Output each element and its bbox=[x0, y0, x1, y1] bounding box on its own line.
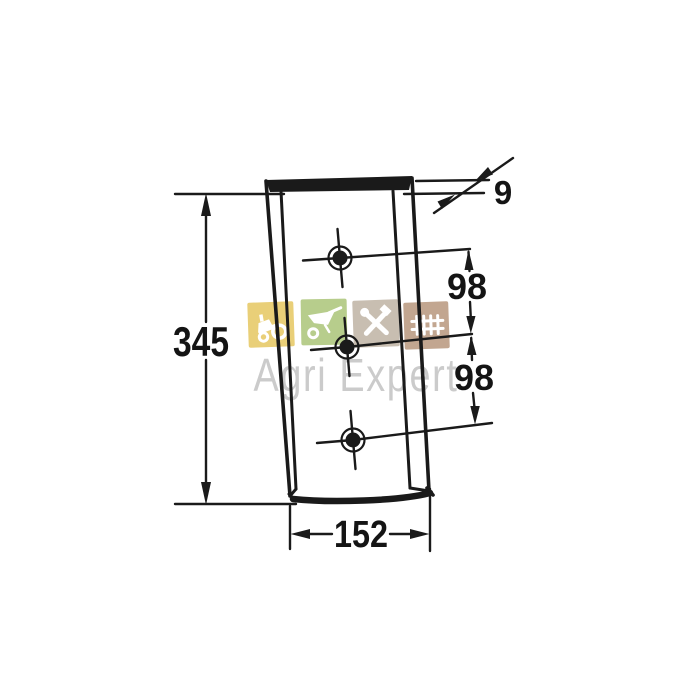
dim-label-152: 152 bbox=[334, 514, 388, 556]
watermark-tile-3 bbox=[352, 299, 400, 348]
watermark-text: Agri Expert bbox=[254, 349, 459, 401]
dim-9-ext-lower bbox=[404, 193, 484, 194]
technical-drawing-page: Agri Expert bbox=[0, 0, 700, 700]
drawing-canvas: Agri Expert bbox=[0, 0, 700, 700]
harrow-tile bbox=[403, 301, 450, 350]
dim-label-98-upper: 98 bbox=[447, 266, 487, 307]
dim-label-9: 9 bbox=[494, 174, 512, 211]
dim-9-ext-upper bbox=[416, 180, 489, 181]
dim-label-98-lower: 98 bbox=[454, 357, 494, 398]
watermark-tile-4 bbox=[403, 301, 450, 350]
dim-label-345: 345 bbox=[173, 318, 229, 365]
